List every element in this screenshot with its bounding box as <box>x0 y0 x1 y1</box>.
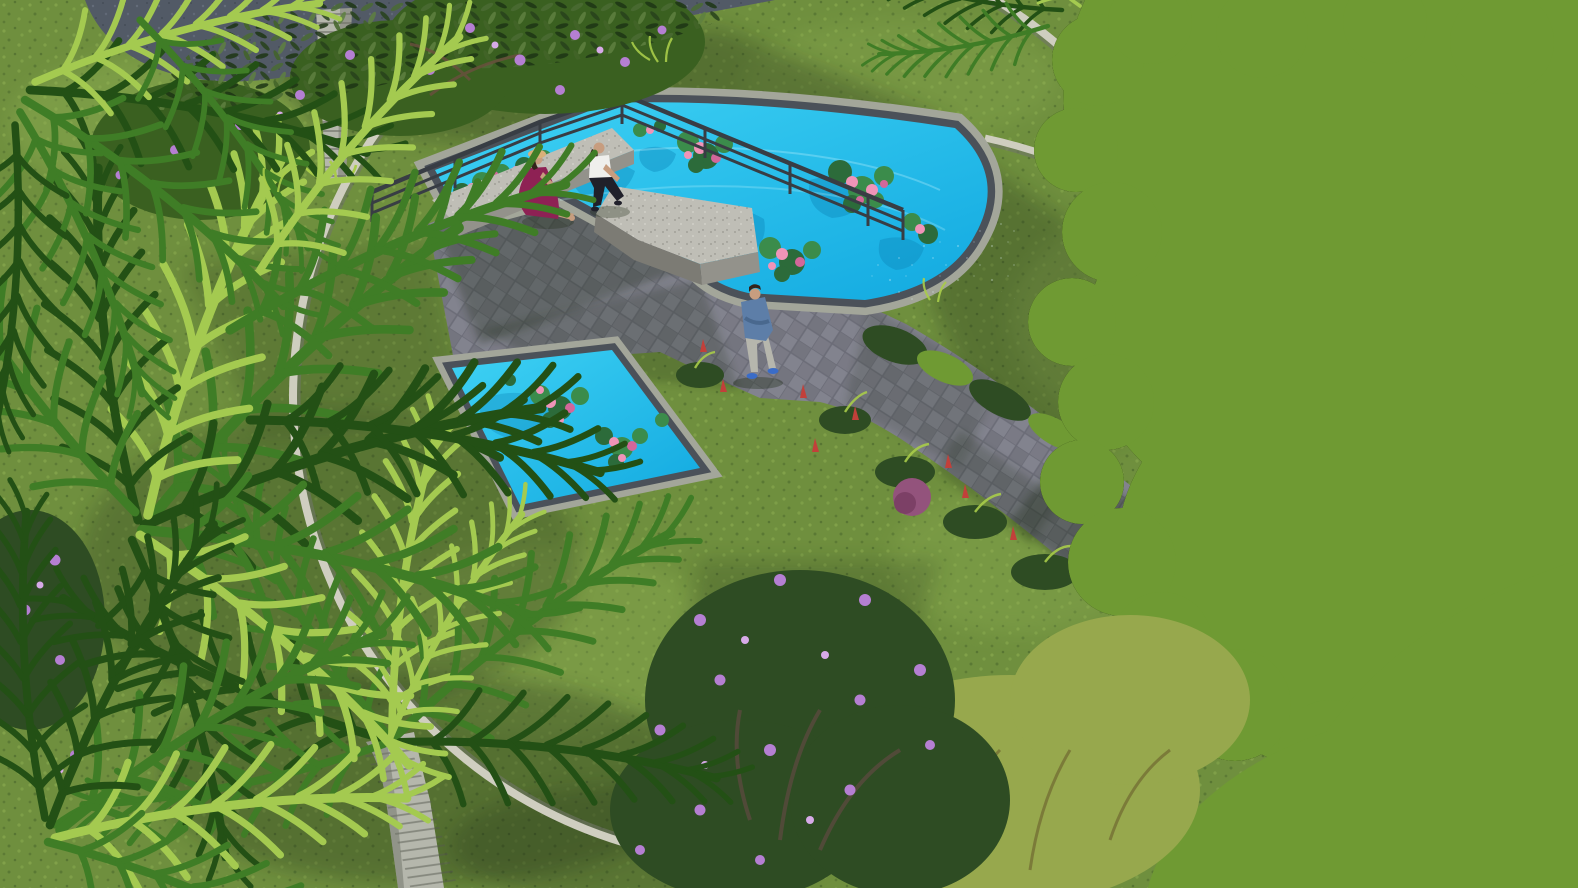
scene-canvas: Aerial 3D rendering of a tropical park: … <box>0 0 1578 888</box>
park-render: Aerial 3D rendering of a tropical park: … <box>0 0 1578 888</box>
